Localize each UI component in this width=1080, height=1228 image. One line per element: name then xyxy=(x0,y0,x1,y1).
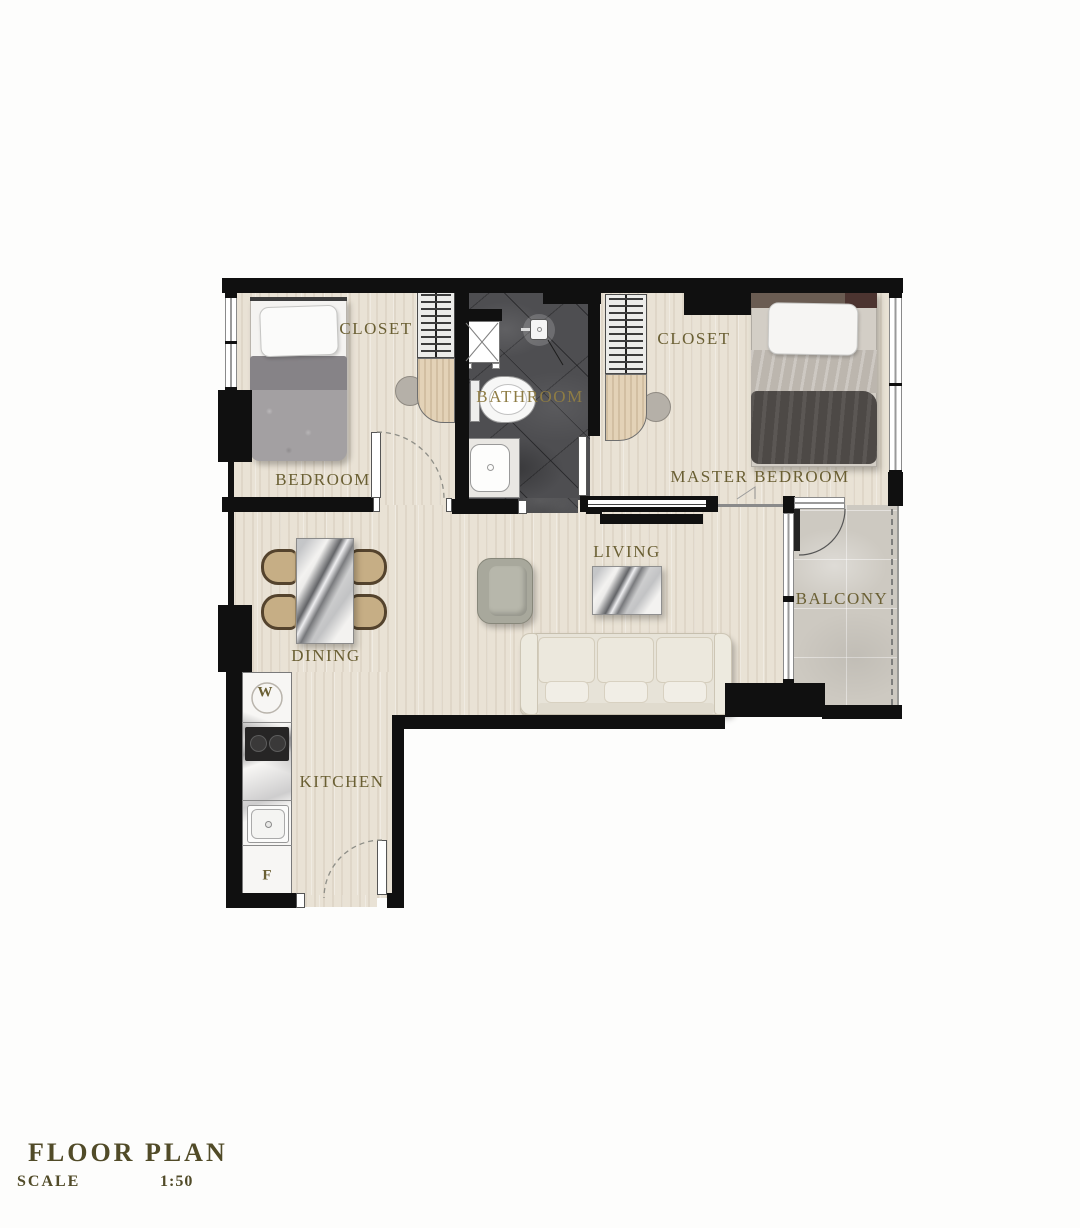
wardrobe-bedroom-hangers xyxy=(417,290,455,358)
label-washer: W xyxy=(258,685,273,702)
wall-balcony-bottom xyxy=(822,705,902,719)
floor-bathroom-doorway xyxy=(523,498,578,513)
wardrobe-master-hangers xyxy=(605,294,647,374)
window-sill-line xyxy=(718,504,790,507)
counter-divider xyxy=(242,800,292,801)
floor-entry-threshold xyxy=(296,895,377,907)
label-master-bedroom: MASTER BEDROOM xyxy=(670,467,849,487)
bedroom-door-leaf xyxy=(371,432,381,498)
bedroom-door-jamb xyxy=(373,497,380,512)
stove-burner xyxy=(250,735,267,752)
bed-single-blanket-fold xyxy=(250,356,347,394)
shower-head-nozzle xyxy=(537,327,542,332)
coffee-table xyxy=(592,566,662,615)
bed-master-pillow xyxy=(768,302,859,356)
wall-bathroom-bottom xyxy=(452,499,518,514)
sofa-armrest-left xyxy=(520,633,538,715)
window-cap xyxy=(783,679,794,685)
tv-console xyxy=(600,514,703,524)
sofa-backrest xyxy=(538,703,714,714)
window-cap xyxy=(783,596,794,602)
balcony-door-leaf xyxy=(794,509,800,551)
balcony-door-threshold xyxy=(794,497,845,509)
wall-living-bottom xyxy=(392,715,725,729)
stove-burner xyxy=(269,735,286,752)
shower-tray xyxy=(464,321,500,363)
bathroom-threshold xyxy=(518,500,527,514)
kitchen-counter xyxy=(242,672,292,898)
label-dining: DINING xyxy=(291,646,360,666)
window-cap xyxy=(225,293,237,298)
wall-master-closet-stub xyxy=(684,281,751,315)
counter-divider xyxy=(242,845,292,846)
label-bedroom: BEDROOM xyxy=(275,470,371,490)
bedroom-door-jamb xyxy=(446,498,452,512)
bed-single-pillow xyxy=(259,305,339,358)
label-kitchen: KITCHEN xyxy=(299,772,384,792)
window-cap xyxy=(225,341,237,344)
label-living: LIVING xyxy=(593,542,661,562)
sofa-seat-cushion xyxy=(597,637,654,683)
window-cap xyxy=(225,387,237,391)
balcony-railing xyxy=(891,509,895,705)
wall-kitchen-right xyxy=(392,717,404,908)
dining-chair xyxy=(261,594,297,630)
sofa-seat-cushion xyxy=(656,637,713,683)
window-cap xyxy=(889,293,902,298)
wall-bedroom-bottom xyxy=(222,497,373,512)
wall-bedroom-bathroom xyxy=(455,292,469,500)
bed-master-blanket xyxy=(751,391,877,464)
scale-label: SCALE xyxy=(17,1173,80,1191)
wall-entry-stub xyxy=(387,893,404,908)
pillar-left-lower xyxy=(218,605,252,672)
sofa-seat-cushion xyxy=(538,637,595,683)
sofa-pillow xyxy=(545,681,589,703)
wall-right-bottom xyxy=(888,472,903,506)
sliding-door-track xyxy=(588,500,706,507)
counter-divider xyxy=(242,722,292,723)
bed-master-sheet xyxy=(751,350,877,393)
dining-table xyxy=(296,538,354,644)
dining-chair xyxy=(351,549,387,585)
dining-chair xyxy=(351,594,387,630)
wall-block-living-balcony xyxy=(725,683,825,717)
plan-title: FLOOR PLAN xyxy=(28,1138,228,1168)
pillar-left-upper xyxy=(218,390,252,462)
floor-plan-page: BEDROOM CLOSET BATHROOM CLOSET MASTER BE… xyxy=(0,0,1080,1228)
window-cap xyxy=(889,383,902,386)
sofa-pillow xyxy=(604,681,648,703)
bath-sink-drain xyxy=(487,464,494,471)
label-bedroom-closet: CLOSET xyxy=(339,319,412,339)
wall-bathroom-right xyxy=(588,292,600,436)
label-bathroom: BATHROOM xyxy=(476,387,583,407)
window-cap xyxy=(889,470,902,474)
armchair-seat xyxy=(489,566,527,616)
scale-value: 1:50 xyxy=(160,1173,193,1191)
dining-chair xyxy=(261,549,297,585)
shower-jamb xyxy=(492,363,500,369)
kitchen-faucet xyxy=(265,821,272,828)
entry-door-leaf xyxy=(377,840,387,895)
wall-kitchen-bottom xyxy=(226,893,296,908)
label-refrigerator: F xyxy=(262,868,271,885)
sofa-pillow xyxy=(663,681,707,703)
wall-left-thin-lower xyxy=(228,512,234,605)
label-master-closet: CLOSET xyxy=(657,329,730,349)
entry-threshold xyxy=(296,893,305,908)
bed-single-headboard xyxy=(250,297,347,301)
wall-left-thin-upper xyxy=(228,458,234,498)
wall-kitchen-left xyxy=(226,672,242,908)
label-balcony: BALCONY xyxy=(796,589,889,609)
bathroom-door-leaf xyxy=(578,436,587,496)
bed-single-quilt xyxy=(250,390,347,461)
wardrobe-bedroom-cabinet xyxy=(417,358,455,423)
